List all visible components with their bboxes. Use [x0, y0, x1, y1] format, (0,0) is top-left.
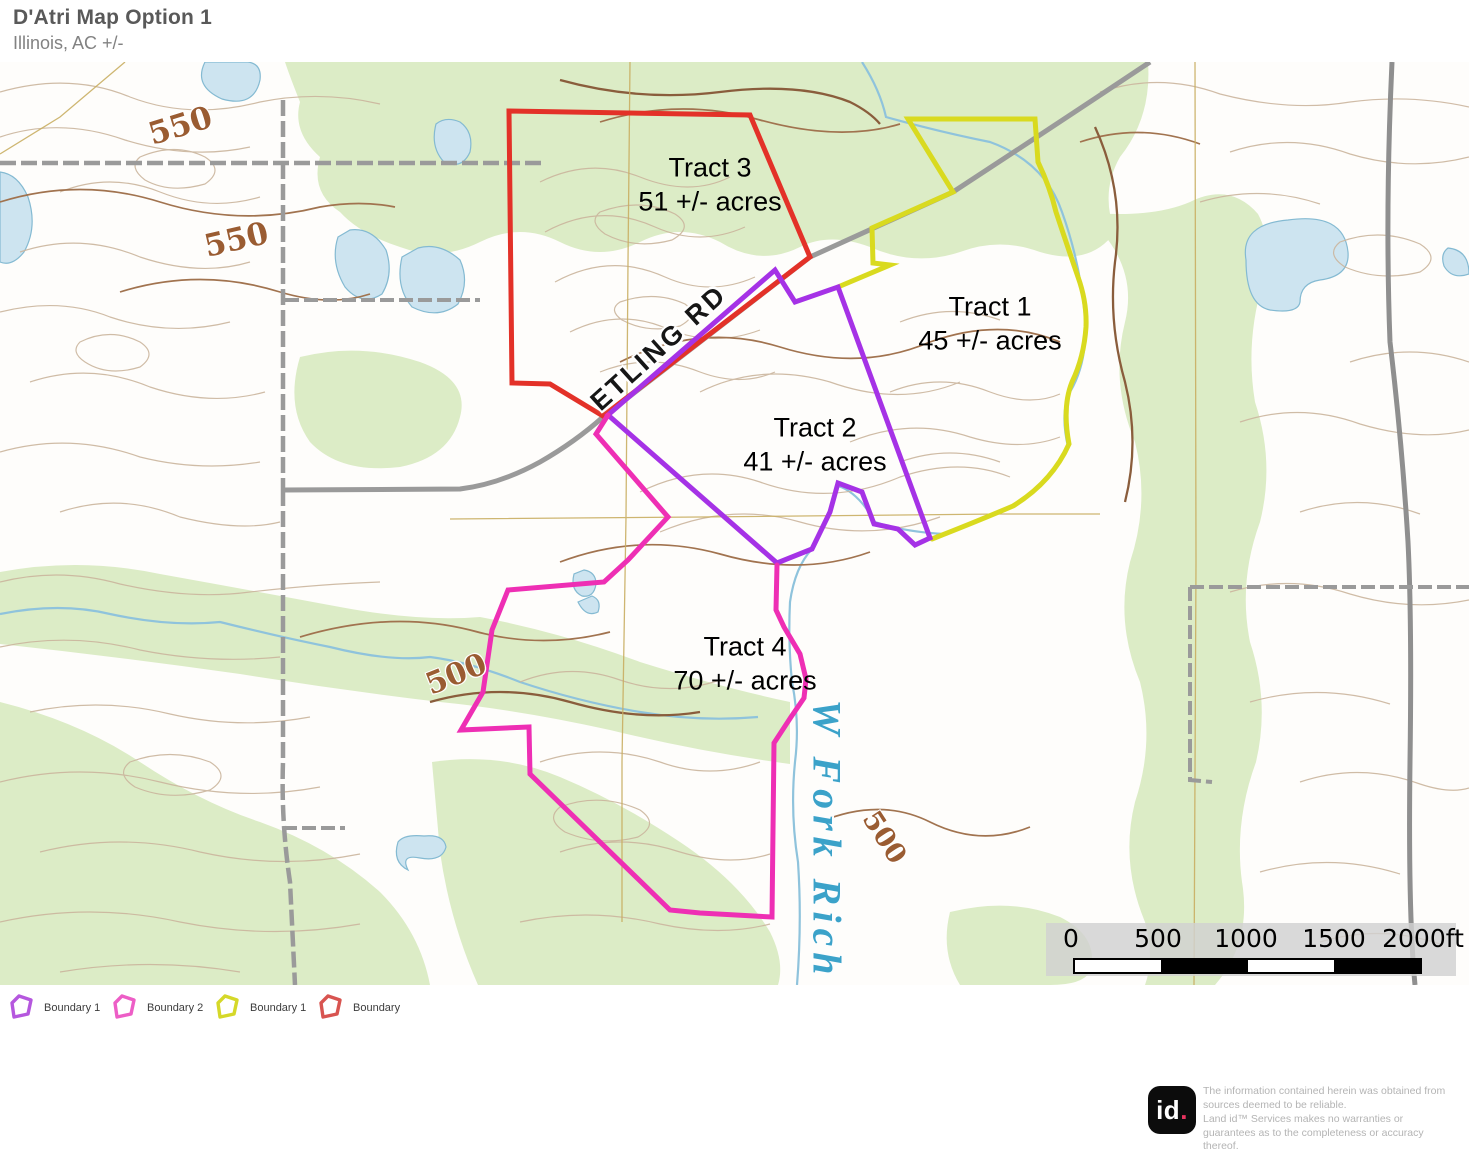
page-subtitle: Illinois, AC +/-	[13, 33, 212, 54]
scale-segment	[1075, 960, 1161, 972]
scale-tick-1000: 1000	[1214, 924, 1278, 953]
tract1-acres: 45 +/- acres	[918, 324, 1061, 358]
disclaimer-text: The information contained herein was obt…	[1203, 1085, 1456, 1154]
tract3-label: Tract 3 51 +/- acres	[638, 151, 781, 219]
legend: Boundary 1 Boundary 2 Boundary 1 Boundar…	[8, 994, 420, 1021]
legend-label: Boundary 2	[147, 1002, 203, 1014]
boundary-shape-icon	[8, 994, 35, 1021]
boundary-shape-icon	[214, 994, 241, 1021]
tract4-label: Tract 4 70 +/- acres	[673, 630, 816, 698]
legend-item-boundary-red: Boundary	[317, 994, 420, 1021]
tract2-name: Tract 2	[743, 411, 886, 445]
tract4-acres: 70 +/- acres	[673, 664, 816, 698]
scale-bar-segments	[1073, 958, 1422, 974]
tract2-acres: 41 +/- acres	[743, 445, 886, 479]
scale-tick-2000: 2000ft	[1382, 924, 1464, 953]
scale-tick-1500: 1500	[1302, 924, 1366, 953]
tract2-label: Tract 2 41 +/- acres	[743, 411, 886, 479]
boundary-shape-icon	[317, 994, 344, 1021]
tract1-name: Tract 1	[918, 290, 1061, 324]
scale-segment	[1334, 960, 1420, 972]
tract1-label: Tract 1 45 +/- acres	[918, 290, 1061, 358]
scale-tick-500: 500	[1134, 924, 1182, 953]
map-header: D'Atri Map Option 1 Illinois, AC +/-	[13, 6, 212, 54]
legend-label: Boundary 1	[250, 1002, 306, 1014]
logo-dot: .	[1180, 1095, 1188, 1126]
tract3-acres: 51 +/- acres	[638, 185, 781, 219]
scale-segment	[1161, 960, 1247, 972]
tract3-name: Tract 3	[638, 151, 781, 185]
scale-bar: 0 500 1000 1500 2000ft	[1046, 923, 1456, 976]
stream-label-w-fork: W Fork Rich	[804, 700, 851, 981]
land-id-logo: id.	[1148, 1086, 1196, 1134]
legend-item-boundary-1-purple: Boundary 1	[8, 994, 111, 1021]
legend-item-boundary-1-yellow: Boundary 1	[214, 994, 317, 1021]
logo-text: id	[1156, 1095, 1180, 1126]
legend-item-boundary-2-pink: Boundary 2	[111, 994, 214, 1021]
scale-tick-0: 0	[1063, 924, 1079, 953]
boundary-shape-icon	[111, 994, 138, 1021]
topo-map: Tract 3 51 +/- acres Tract 1 45 +/- acre…	[0, 62, 1469, 985]
legend-label: Boundary 1	[44, 1002, 100, 1014]
page-title: D'Atri Map Option 1	[13, 6, 212, 30]
scale-segment	[1248, 960, 1334, 972]
legend-label: Boundary	[353, 1002, 400, 1014]
tract4-name: Tract 4	[673, 630, 816, 664]
